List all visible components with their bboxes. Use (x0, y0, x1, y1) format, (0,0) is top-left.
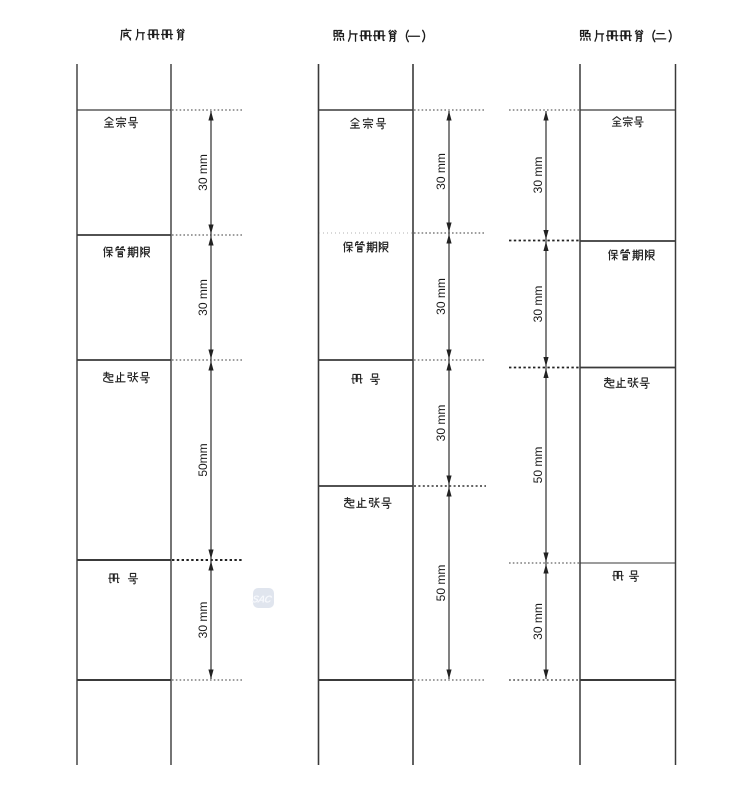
svg-text:50 mm: 50 mm (434, 565, 448, 602)
svg-text:30 mm: 30 mm (196, 602, 210, 639)
svg-text:50 mm: 50 mm (531, 447, 545, 484)
svg-text:30 mm: 30 mm (531, 603, 545, 640)
svg-text:30 mm: 30 mm (531, 157, 545, 194)
svg-text:30 mm: 30 mm (434, 405, 448, 442)
svg-text:30 mm: 30 mm (196, 154, 210, 191)
svg-text:50mm: 50mm (196, 443, 210, 476)
svg-text:30 mm: 30 mm (531, 286, 545, 323)
svg-text:30 mm: 30 mm (196, 279, 210, 316)
svg-text:30 mm: 30 mm (434, 153, 448, 190)
svg-text:30 mm: 30 mm (434, 278, 448, 315)
